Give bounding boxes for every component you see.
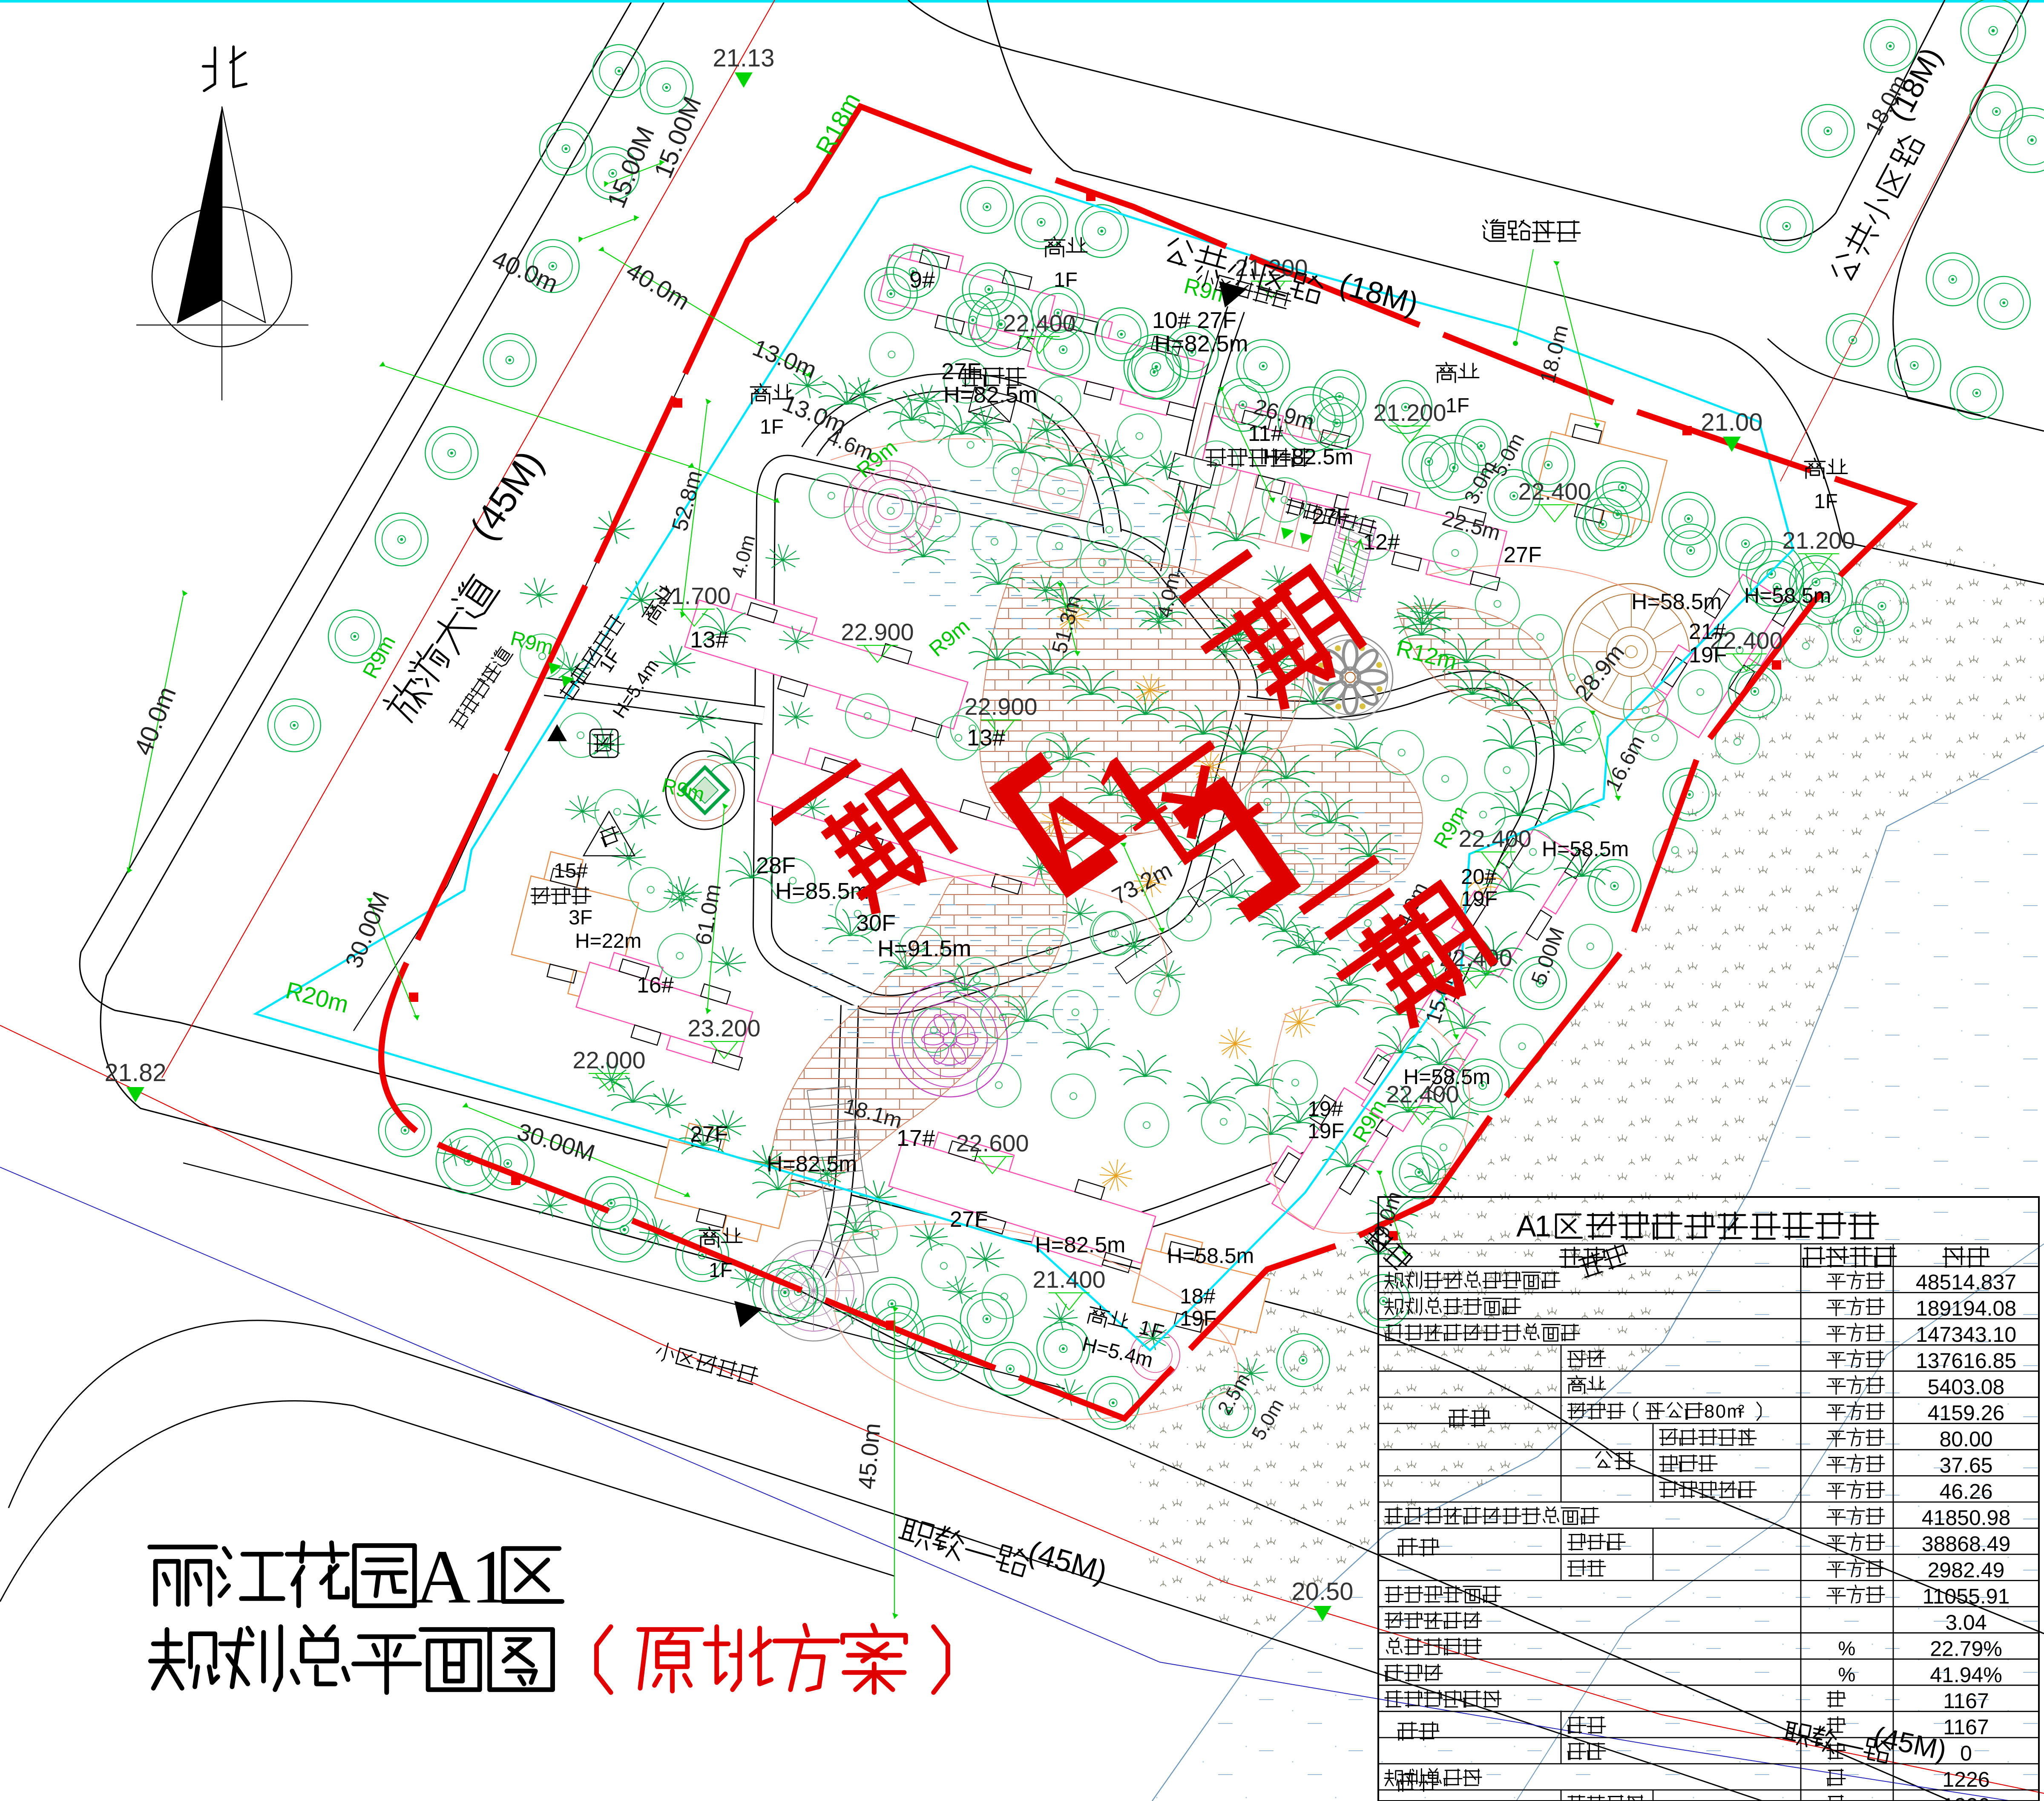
svg-text:H=82.5m: H=82.5m <box>943 382 1038 408</box>
svg-text:1F: 1F <box>1446 394 1469 417</box>
svg-text:41.94%: 41.94% <box>1930 1663 2002 1687</box>
svg-text:22.400: 22.400 <box>1518 478 1591 505</box>
svg-text:21.13: 21.13 <box>713 44 774 72</box>
svg-text:13#: 13# <box>690 627 728 653</box>
svg-text:22.900: 22.900 <box>964 693 1037 720</box>
svg-text:20.50: 20.50 <box>1291 1578 1353 1605</box>
svg-text:189194.08: 189194.08 <box>1916 1296 2016 1320</box>
svg-text:19F: 19F <box>1308 1119 1344 1143</box>
svg-text:3F: 3F <box>569 906 592 929</box>
svg-text:1167: 1167 <box>1943 1689 1989 1713</box>
svg-text:23.200: 23.200 <box>687 1015 760 1041</box>
svg-text:11#: 11# <box>1248 421 1283 446</box>
svg-text:H=58.5m: H=58.5m <box>1167 1244 1254 1268</box>
svg-text:1F: 1F <box>709 1259 733 1282</box>
svg-text:19#: 19# <box>1308 1097 1343 1121</box>
svg-text:21.400: 21.400 <box>1032 1266 1105 1293</box>
svg-text:16#: 16# <box>637 973 674 998</box>
svg-text:19F: 19F <box>1461 887 1498 911</box>
svg-text:18#: 18# <box>1180 1284 1216 1308</box>
svg-text:H=91.5m: H=91.5m <box>877 936 972 961</box>
svg-text:1: 1 <box>1535 1209 1551 1243</box>
svg-text:41850.98: 41850.98 <box>1922 1506 2011 1530</box>
svg-text:2982.49: 2982.49 <box>1928 1558 2005 1582</box>
svg-text:1167: 1167 <box>1943 1715 1989 1739</box>
svg-text:8: 8 <box>1704 1401 1714 1422</box>
svg-text:%: % <box>1838 1663 1856 1686</box>
svg-text:137616.85: 137616.85 <box>1916 1349 2016 1372</box>
svg-text:46.26: 46.26 <box>1939 1480 1992 1504</box>
svg-text:28F: 28F <box>756 853 796 878</box>
svg-text:21#: 21# <box>1689 619 1726 644</box>
svg-text:1F: 1F <box>760 416 784 438</box>
svg-text:30F: 30F <box>856 910 896 936</box>
svg-text:27F: 27F <box>690 1122 728 1147</box>
svg-text:22.900: 22.900 <box>841 619 914 645</box>
svg-text:37.65: 37.65 <box>1939 1453 1992 1477</box>
svg-text:H=58.5m: H=58.5m <box>1542 837 1629 861</box>
svg-text:H=22m: H=22m <box>575 930 641 952</box>
svg-text:1226: 1226 <box>1942 1768 1989 1792</box>
svg-text:27F: 27F <box>1504 543 1542 567</box>
svg-text:21.82: 21.82 <box>104 1059 166 1087</box>
svg-text:4159.26: 4159.26 <box>1928 1401 2005 1425</box>
svg-text:13#: 13# <box>967 725 1005 751</box>
svg-text:27F: 27F <box>941 359 981 384</box>
svg-text:0: 0 <box>1716 1401 1726 1422</box>
svg-text:12#: 12# <box>1363 530 1400 555</box>
svg-text:21.700: 21.700 <box>658 582 730 609</box>
svg-text:22.79%: 22.79% <box>1930 1637 2002 1660</box>
svg-text:22.000: 22.000 <box>572 1047 645 1073</box>
svg-text:1F: 1F <box>1054 269 1078 291</box>
svg-text:0: 0 <box>1960 1741 1972 1765</box>
svg-text:H=85.5m: H=85.5m <box>775 878 869 904</box>
svg-text:H=58.5m: H=58.5m <box>1631 590 1722 614</box>
svg-text:21.00: 21.00 <box>1701 409 1762 436</box>
svg-text:20#: 20# <box>1461 865 1497 889</box>
svg-text:5403.08: 5403.08 <box>1928 1375 2005 1399</box>
svg-text:3.04: 3.04 <box>1945 1611 1987 1634</box>
svg-text:22.400: 22.400 <box>1003 310 1075 337</box>
svg-text:A: A <box>1516 1209 1536 1243</box>
svg-text:H=82.5m: H=82.5m <box>1035 1233 1125 1257</box>
svg-text:9#: 9# <box>909 267 935 293</box>
svg-text:27F: 27F <box>1312 504 1350 529</box>
svg-text:80.00: 80.00 <box>1939 1427 1992 1451</box>
svg-text:A1: A1 <box>415 1534 509 1619</box>
svg-text:17#: 17# <box>897 1125 935 1151</box>
svg-text:27F: 27F <box>950 1207 988 1232</box>
svg-text:21.200: 21.200 <box>1373 399 1446 426</box>
svg-text:%: % <box>1838 1637 1856 1659</box>
svg-text:147343.10: 147343.10 <box>1916 1323 2016 1346</box>
svg-text:22.400: 22.400 <box>1458 825 1531 852</box>
svg-text:19F: 19F <box>1180 1306 1216 1330</box>
svg-text:48514.837: 48514.837 <box>1916 1270 2016 1294</box>
svg-text:H=58.5m: H=58.5m <box>1403 1065 1490 1089</box>
svg-text:10# 27F: 10# 27F <box>1152 308 1236 333</box>
svg-text:19F: 19F <box>1689 643 1727 667</box>
svg-text:²: ² <box>1738 1401 1745 1422</box>
svg-text:21.200: 21.200 <box>1782 527 1855 554</box>
svg-text:15#: 15# <box>554 860 588 882</box>
svg-text:11055.91: 11055.91 <box>1923 1584 2010 1608</box>
svg-text:38868.49: 38868.49 <box>1922 1532 2011 1556</box>
svg-text:H=82.5m: H=82.5m <box>1263 445 1353 469</box>
svg-text:22.600: 22.600 <box>956 1130 1029 1157</box>
svg-text:H=82.5m: H=82.5m <box>1154 331 1248 357</box>
svg-text:1F: 1F <box>1814 490 1838 513</box>
svg-text:H=82.5m: H=82.5m <box>767 1152 857 1177</box>
svg-text:1226: 1226 <box>1942 1794 1989 1801</box>
svg-text:H=58.5m: H=58.5m <box>1744 584 1831 607</box>
